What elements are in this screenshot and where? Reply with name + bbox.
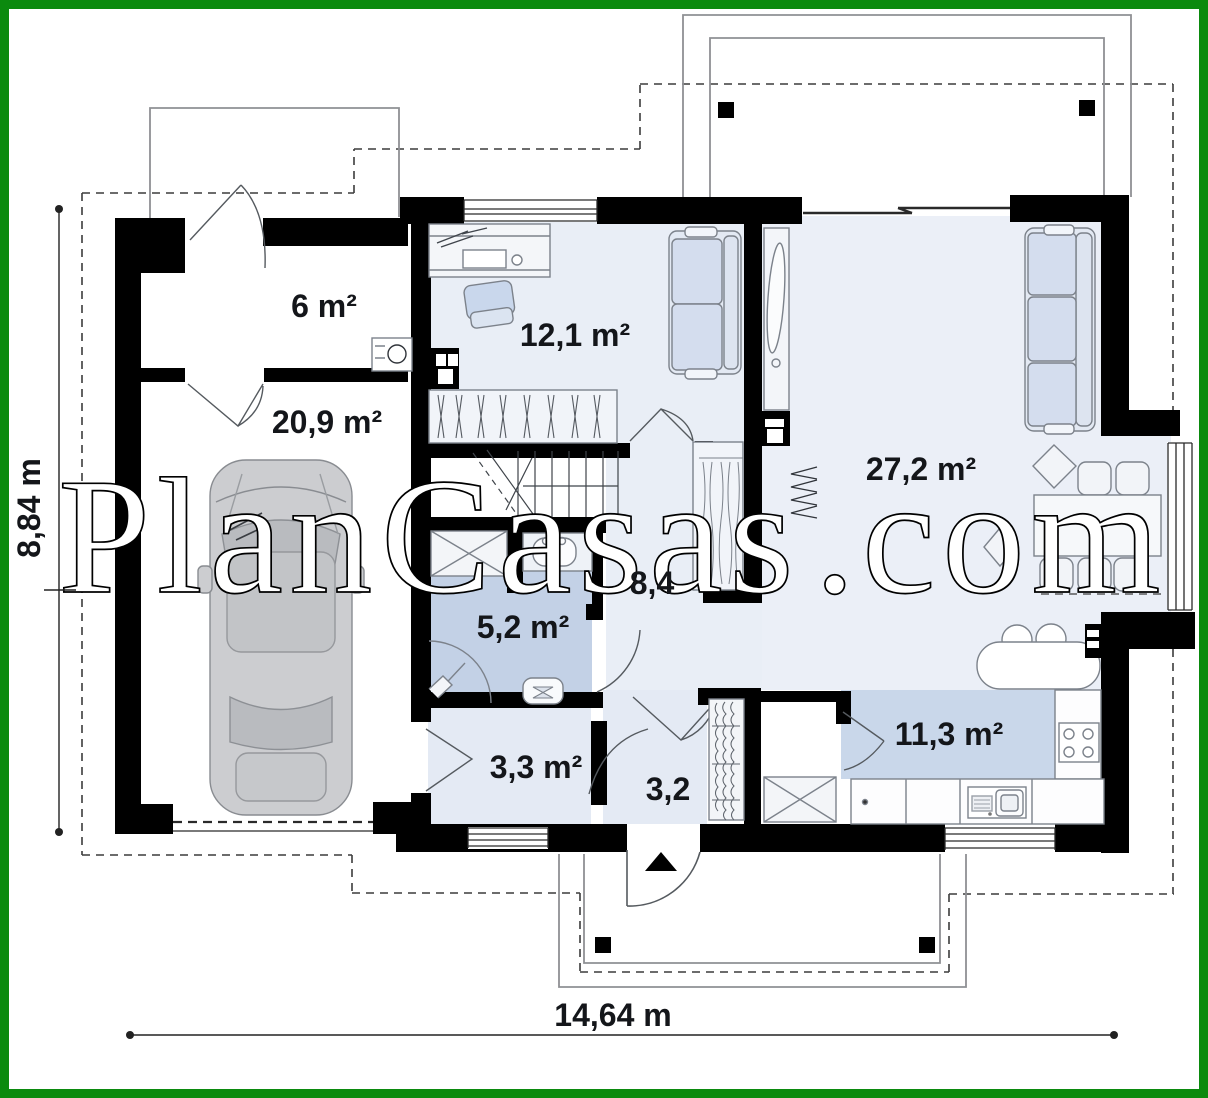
svg-text:3,3 m²: 3,3 m² [490,749,582,785]
svg-text:14,64 m: 14,64 m [554,997,671,1033]
svg-text:5,2 m²: 5,2 m² [477,609,569,645]
svg-text:8,84 m: 8,84 m [11,458,47,558]
svg-text:8,4: 8,4 [630,565,675,601]
svg-text:20,9 m²: 20,9 m² [272,404,382,440]
svg-text:12,1 m²: 12,1 m² [520,317,630,353]
svg-text:3,2: 3,2 [646,771,690,807]
svg-text:6 m²: 6 m² [291,288,357,324]
svg-text:PlanCasas.com: PlanCasas.com [58,444,1167,628]
svg-text:11,3 m²: 11,3 m² [895,716,1004,752]
svg-text:27,2 m²: 27,2 m² [866,451,976,487]
